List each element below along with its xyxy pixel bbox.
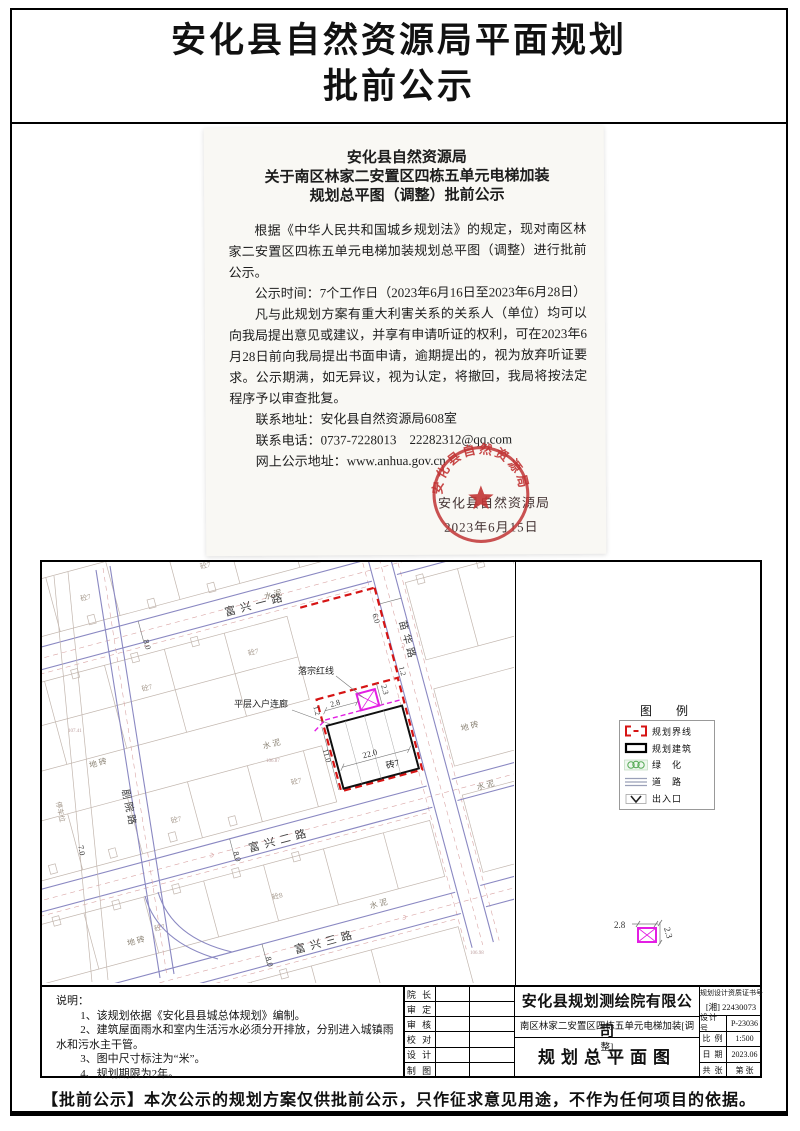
notes-title: 说明：	[56, 994, 398, 1009]
notice-paragraph-period: 公示时间：7个工作日（2023年6月16日至2023年6月28日）	[229, 281, 587, 304]
note-item: 1、该规划依据《安化县县城总体规划》编制。	[56, 1009, 398, 1024]
surface-label-tile: 地砖	[126, 933, 148, 948]
notice-paragraph-hearing: 凡与此规划方案有重大利害关系的关系人（单位）均可以向我局提出意见或建议，并享有申…	[229, 302, 588, 409]
elevation-value: 106.98	[470, 951, 484, 956]
page-title-line2: 批前公示	[12, 64, 786, 110]
site-plan-panel: 砼7 砼7 砼7 砼7 砼7	[40, 560, 762, 1078]
building-type-label: 砼7	[199, 562, 212, 571]
building-type-label: 砼7	[247, 646, 260, 658]
elevator-depth-dim: 2.3	[379, 684, 390, 696]
role-label: 审 定	[405, 1002, 436, 1017]
field-design-no: 设计号 P-23036	[700, 1016, 762, 1032]
seal-star-icon	[468, 485, 493, 509]
black-rect-building-icon	[620, 742, 652, 754]
entrance-arrow-icon	[620, 793, 652, 805]
note-item: 4、规划期限为2年。	[56, 1067, 398, 1082]
street-grid: 砼7 砼7 砼7 砼7 砼7	[42, 562, 514, 983]
surface-label-cement: 水泥	[475, 777, 497, 792]
elevation-value: 106.87	[266, 759, 280, 764]
red-dashed-boundary-icon	[620, 725, 652, 737]
road-name-miaohua: 苗华路	[396, 619, 419, 663]
page-title-block: 安化县自然资源局平面规划 批前公示	[12, 10, 786, 124]
building-row-north-of-road1: 砼7 砼7	[42, 562, 358, 664]
road-name-juyuan: 剧院路	[119, 788, 140, 829]
survey-lines	[42, 562, 499, 983]
field-sheet: 共 张 第 张	[700, 1063, 762, 1079]
parking-label: 停车位	[54, 801, 67, 823]
legend-label: 规划建筑	[652, 742, 692, 755]
field-value: P-23036	[727, 1016, 762, 1031]
role-label: 制 图	[405, 1063, 436, 1078]
legend-item-road: 道 路	[620, 773, 714, 790]
road-width-dim: 7.0	[76, 845, 87, 857]
legend-title: 图 例	[619, 702, 715, 719]
legend-item-greening: 绿 化	[620, 757, 714, 774]
note-item: 2、建筑屋面雨水和室内生活污水必须分开排放，分别进入城镇雨水和污水主干管。	[56, 1023, 398, 1052]
legend-item-boundary: 规划界线	[620, 723, 714, 740]
drawing-name: 规划总平面图	[515, 1038, 699, 1078]
green-circles-icon	[620, 759, 652, 771]
field-scale: 比 例 1:500	[700, 1032, 762, 1048]
role-label: 院 长	[405, 987, 436, 1002]
gap-dim: 1.2	[311, 705, 322, 717]
red-boundary-segment	[375, 588, 399, 678]
plan-notes: 说明： 1、该规划依据《安化县县城总体规划》编制。 2、建筑屋面雨水和室内生活污…	[56, 994, 398, 1081]
surface-label-tile: 地砖	[460, 718, 482, 733]
road-width-dim: 6.0	[370, 612, 381, 624]
legend-label: 道 路	[652, 775, 682, 788]
notice-heading-line3: 规划总平图（调整）批前公示	[228, 186, 586, 207]
legend-box: 规划界线 规划建筑 绿 化 道 路 出入口	[619, 720, 715, 810]
legend-item-entrance: 出入口	[620, 790, 714, 807]
notice-paragraph-basis: 根据《中华人民共和国城乡规划法》的规定，现对南区林家二安置区四栋五单元电梯加装规…	[228, 218, 586, 283]
site-plan-drawing: 砼7 砼7 砼7 砼7 砼7	[42, 562, 514, 983]
page-title-line1: 安化县自然资源局平面规划	[12, 10, 786, 64]
plan-bottom-strip: 说明： 1、该规划依据《安化县县城总体规划》编制。 2、建筑屋面雨水和室内生活污…	[42, 985, 760, 1078]
official-seal: 安化县自然资源局	[428, 441, 535, 548]
road-fuxing-3: 富兴三路 8.0 水泥	[42, 831, 514, 983]
title-block-fields: 规划设计资质证书号 [湘] 22430073 设计号 P-23036 比 例 1…	[699, 987, 762, 1078]
surface-label-cement: 水泥	[261, 736, 283, 751]
field-label: 共 张	[700, 1063, 727, 1079]
role-label: 设 计	[405, 1048, 436, 1063]
surface-label-cement: 水泥	[368, 896, 390, 911]
signature-grid: 院 长 审 定 审 核 校 对 设 计 制 图	[405, 987, 515, 1078]
road-lines-icon	[620, 776, 652, 788]
notice-contact-address: 联系地址：安化县自然资源局608室	[229, 407, 587, 430]
field-value: 2023.06	[727, 1047, 762, 1062]
footer-disclaimer: 【批前公示】本次公示的规划方案仅供批前公示，只作征求意见用途，不作为任何项目的依…	[12, 1086, 786, 1110]
road-name-fuxing3: 富兴三路	[293, 926, 358, 956]
building-type-label: 砼7	[290, 775, 303, 787]
callout-red-line: 落宗红线	[298, 665, 334, 676]
notice-contact-phone: 联系电话：0737-7228013 22282312@qq.com	[230, 428, 588, 451]
note-item: 3、图中尺寸标注为“米”。	[56, 1052, 398, 1067]
corridor-width-dim: 2.8	[329, 698, 341, 709]
scanned-notice-document: 安化县自然资源局 关于南区林家二安置区四栋五单元电梯加装 规划总平图（调整）批前…	[204, 126, 607, 556]
drawing-title-block: 院 长 审 定 审 核 校 对 设 计 制 图 安化县规划测绘院有限公司 南区林…	[403, 987, 760, 1078]
notice-heading-line2: 关于南区林家二安置区四栋五单元电梯加装	[228, 167, 586, 188]
title-block-center: 安化县规划测绘院有限公司 南区林家二安置区四栋五单元电梯加装[调整] 规划总平面…	[515, 987, 699, 1078]
legend-label: 绿 化	[652, 758, 682, 771]
legend-label: 出入口	[652, 792, 682, 805]
notice-online-address: 网上公示地址：www.anhua.gov.cn	[230, 449, 588, 472]
legend-item-building: 规划建筑	[620, 740, 714, 757]
field-label: 日 期	[700, 1047, 727, 1062]
callout-corridor: 平层入户连廊	[234, 698, 288, 709]
detail-width-dim: 2.8	[614, 920, 626, 930]
field-value: 第 张	[727, 1063, 762, 1079]
subject-parcel: 2.8 2.3 1.2 1.2 11.0 22.0 砖7	[283, 585, 433, 794]
building-row-block1-south: 砼7 砼7	[42, 746, 337, 902]
site-plan-map: 砼7 砼7 砼7 砼7 砼7	[42, 562, 516, 985]
role-label: 校 对	[405, 1032, 436, 1047]
building-type-label: 砼7	[79, 592, 92, 604]
legend-label: 规划界线	[652, 725, 692, 738]
notice-heading-line1: 安化县自然资源局	[228, 148, 586, 169]
detail-depth-dim: 2.3	[662, 926, 675, 940]
cert-label: 规划设计资质证书号	[700, 987, 762, 1000]
building-type-label: 砼7	[170, 814, 183, 826]
building-type-label: 砼7	[141, 682, 154, 694]
role-label: 审 核	[405, 1017, 436, 1032]
field-label: 设计号	[700, 1016, 727, 1031]
road-name-fuxing2: 富兴二路	[247, 825, 312, 855]
building-type-label: 砼8	[271, 890, 284, 902]
field-label: 比 例	[700, 1032, 727, 1047]
road-width-dim: 8.0	[141, 639, 152, 651]
elevator-detail-symbol: 2.8 2.3	[612, 902, 692, 960]
company-name: 安化县规划测绘院有限公司	[515, 987, 699, 1017]
surface-label-tile: 地砖	[88, 755, 110, 770]
building-type-label: 砼7	[153, 922, 166, 934]
road-juyuan: 剧院路 7.0 停车位	[54, 566, 232, 982]
field-value: 1:500	[727, 1032, 762, 1047]
field-date: 日 期 2023.06	[700, 1047, 762, 1063]
project-name: 南区林家二安置区四栋五单元电梯加装[调整]	[515, 1017, 699, 1038]
elevation-value: 107.41	[68, 729, 82, 734]
